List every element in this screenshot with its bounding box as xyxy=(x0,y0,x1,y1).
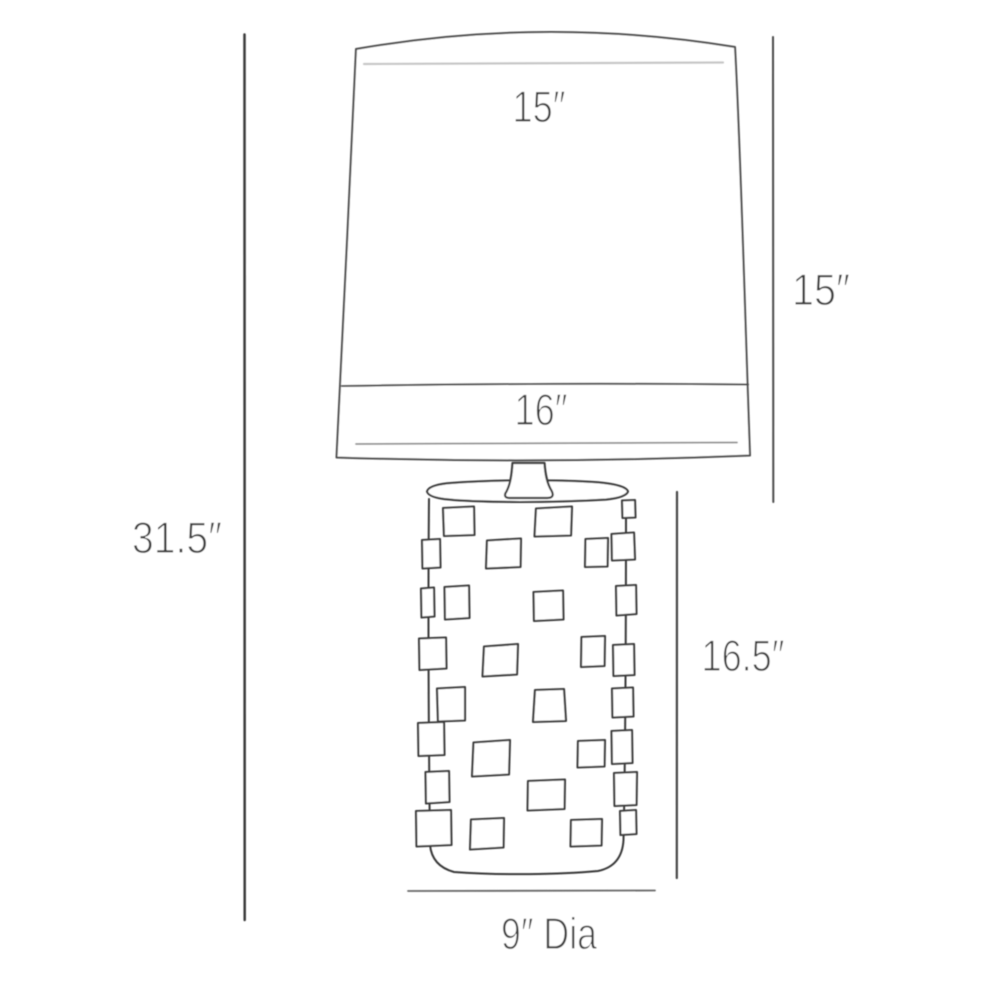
svg-text:9″ Dia: 9″ Dia xyxy=(501,910,597,959)
svg-text:16.5″: 16.5″ xyxy=(702,632,785,681)
svg-text:15″: 15″ xyxy=(513,83,566,132)
svg-text:31.5″: 31.5″ xyxy=(132,514,222,563)
svg-text:15″: 15″ xyxy=(792,266,850,315)
svg-text:16″: 16″ xyxy=(515,386,568,435)
